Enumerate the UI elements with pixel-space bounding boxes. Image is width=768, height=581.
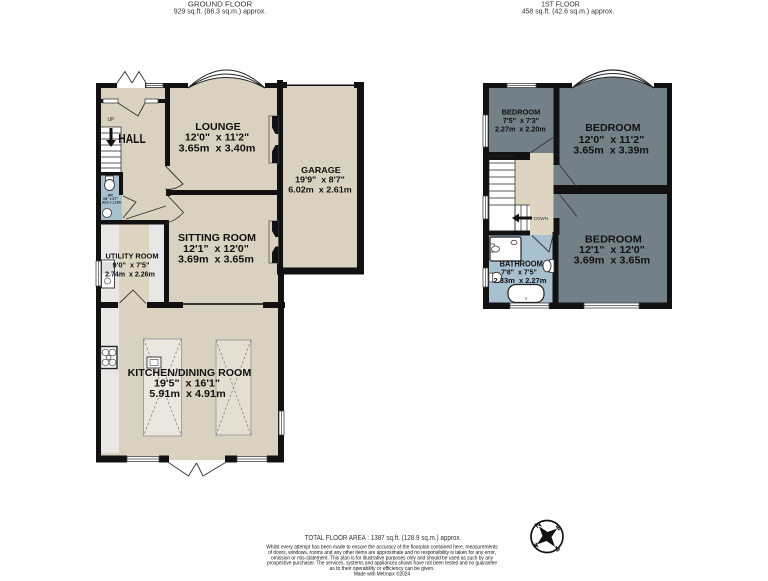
svg-text:GROUND FLOOR: GROUND FLOOR (188, 0, 252, 8)
svg-text:2.27m x 2.20m: 2.27m x 2.20m (495, 127, 546, 134)
svg-text:HALL: HALL (118, 131, 146, 146)
svg-text:6.02m x 2.61m: 6.02m x 2.61m (288, 185, 352, 194)
svg-text:Made with Metropix ©2024: Made with Metropix ©2024 (354, 570, 410, 576)
svg-text:9'0" x 7'5": 9'0" x 7'5" (113, 261, 150, 270)
svg-text:BEDROOM: BEDROOM (585, 234, 642, 245)
svg-text:SITTING ROOM: SITTING ROOM (178, 233, 256, 244)
svg-text:1.42m x 1.10m: 1.42m x 1.10m (100, 201, 122, 205)
svg-text:3.69m x 3.65m: 3.69m x 3.65m (574, 255, 651, 266)
svg-text:BEDROOM: BEDROOM (585, 123, 640, 134)
svg-text:2.74m x 2.26m: 2.74m x 2.26m (105, 270, 155, 279)
svg-text:19'5" x 16'1": 19'5" x 16'1" (154, 379, 220, 390)
svg-text:2.33m x 2.27m: 2.33m x 2.27m (494, 276, 547, 285)
svg-text:5.91m x 4.91m: 5.91m x 4.91m (149, 389, 225, 400)
svg-text:TOTAL FLOOR AREA : 1387 sq.ft.: TOTAL FLOOR AREA : 1387 sq.ft. (128.9 sq… (305, 535, 462, 542)
svg-text:GARAGE: GARAGE (301, 166, 341, 175)
svg-text:12'0" x 11'2": 12'0" x 11'2" (185, 133, 249, 144)
svg-text:12'1" x 12'0": 12'1" x 12'0" (183, 244, 249, 255)
svg-text:3.65m x 3.39m: 3.65m x 3.39m (573, 145, 649, 156)
svg-text:7'5" x 7'3": 7'5" x 7'3" (503, 118, 539, 125)
svg-text:458 sq.ft. (42.6 sq.m.) approx: 458 sq.ft. (42.6 sq.m.) approx. (522, 9, 615, 16)
svg-text:UP: UP (108, 117, 116, 123)
svg-text:BEDROOM: BEDROOM (502, 108, 541, 117)
svg-text:UTILITY ROOM: UTILITY ROOM (106, 252, 159, 261)
svg-text:12'0" x 11'2": 12'0" x 11'2" (579, 135, 645, 146)
svg-text:3.69m x 3.65m: 3.69m x 3.65m (178, 255, 254, 266)
svg-text:19'9" x 8'7": 19'9" x 8'7" (295, 176, 345, 185)
svg-text:929 sq.ft. (86.3 sq.m.) approx: 929 sq.ft. (86.3 sq.m.) approx. (174, 9, 266, 16)
svg-text:3.65m x 3.40m: 3.65m x 3.40m (179, 144, 256, 155)
svg-text:1ST FLOOR: 1ST FLOOR (541, 0, 580, 8)
svg-text:DOWN: DOWN (534, 216, 549, 221)
svg-text:12'1" x 12'0": 12'1" x 12'0" (579, 245, 645, 256)
svg-text:KITCHEN/DINING ROOM: KITCHEN/DINING ROOM (128, 368, 252, 379)
svg-text:LOUNGE: LOUNGE (195, 122, 241, 133)
